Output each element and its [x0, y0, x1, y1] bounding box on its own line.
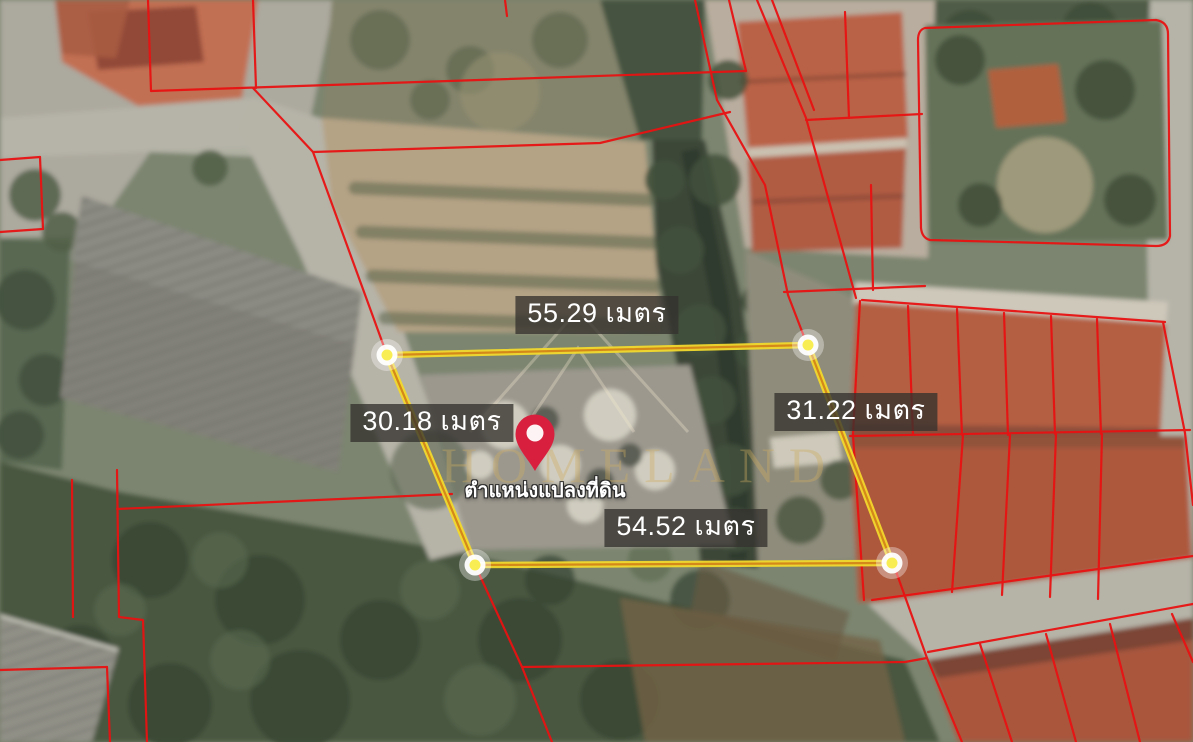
satellite-imagery: HOMELAND [0, 0, 1193, 742]
measurement-label-left: 30.18 เมตร [350, 404, 513, 442]
measurement-label-top: 55.29 เมตร [515, 296, 678, 334]
plot-vertex-marker[interactable] [876, 547, 908, 579]
measurement-label-bottom: 54.52 เมตร [604, 509, 767, 547]
pin-label: ตำแหน่งแปลงที่ดิน [464, 474, 625, 506]
plot-vertex-marker[interactable] [371, 339, 403, 371]
plot-vertex-marker[interactable] [792, 329, 824, 361]
location-pin-icon[interactable] [513, 413, 557, 475]
satellite-map-view[interactable]: HOMELAND 55.29 เมตร 30.1 [0, 0, 1193, 742]
plot-vertex-marker[interactable] [459, 549, 491, 581]
measurement-label-right: 31.22 เมตร [774, 393, 937, 431]
satellite-terrain [0, 0, 1193, 742]
